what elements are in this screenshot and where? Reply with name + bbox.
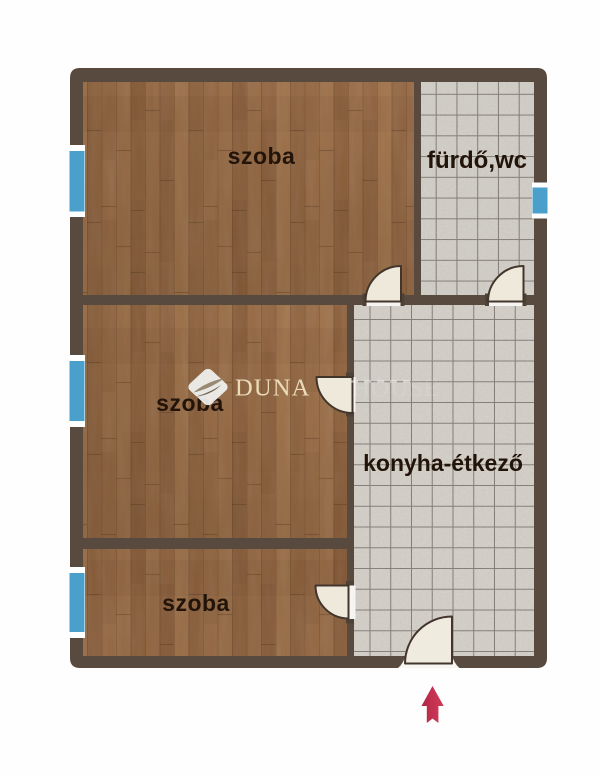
svg-text:szoba: szoba <box>228 143 296 169</box>
svg-text:fürdő,wc: fürdő,wc <box>427 147 527 174</box>
svg-text:szoba: szoba <box>162 590 230 616</box>
svg-text:DUNA: DUNA <box>235 375 311 402</box>
svg-text:konyha-étkező: konyha-étkező <box>363 450 523 476</box>
svg-text:HOUSE: HOUSE <box>352 373 440 402</box>
